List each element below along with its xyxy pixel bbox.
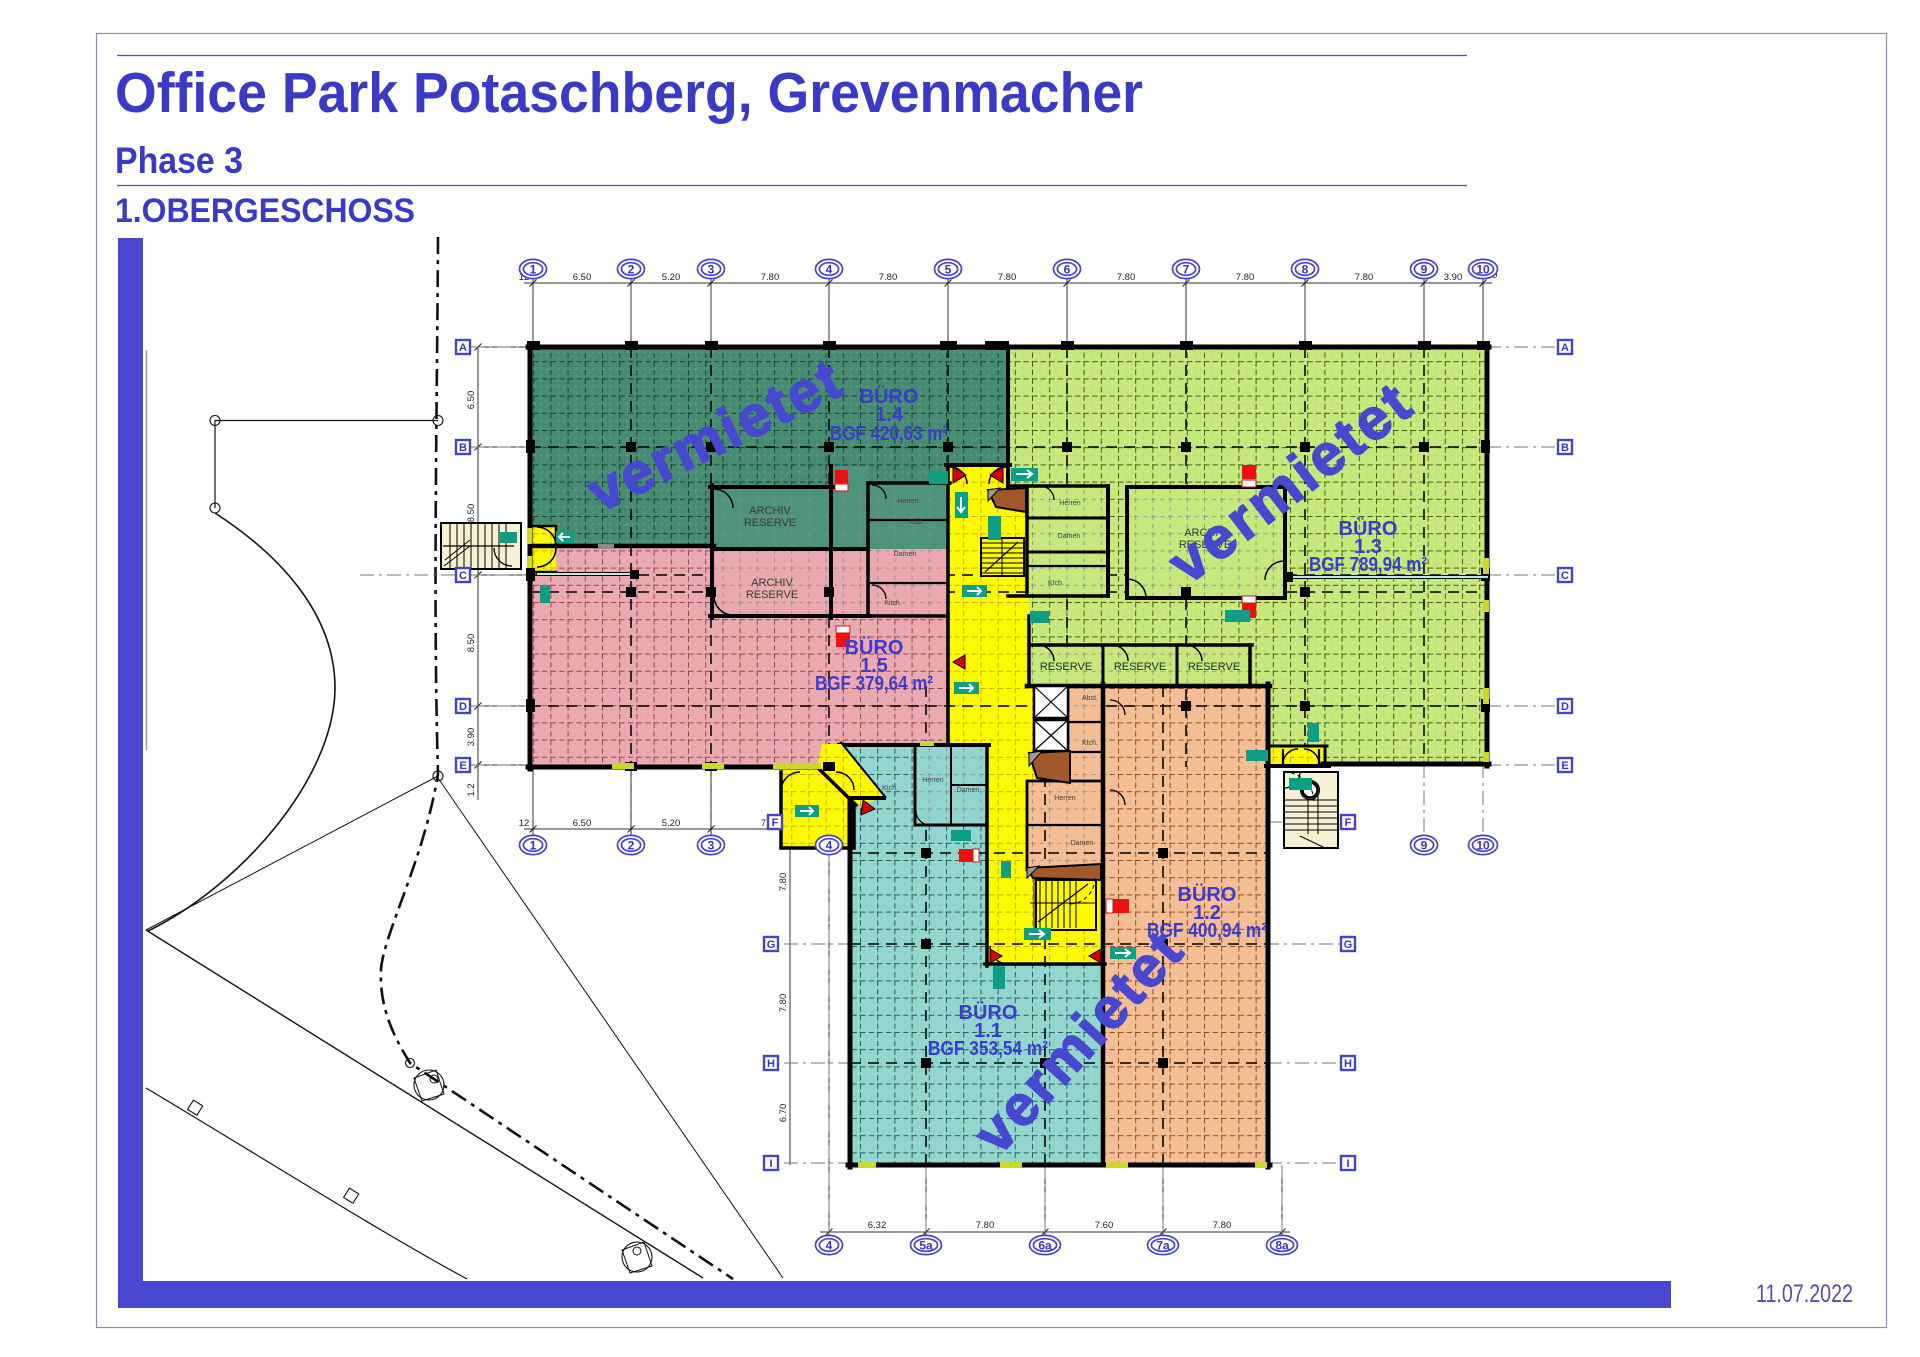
svg-text:G: G xyxy=(1344,939,1353,951)
svg-text:Office Park Potaschberg, Greve: Office Park Potaschberg, Grevenmacher xyxy=(115,61,1143,125)
svg-text:3: 3 xyxy=(708,263,715,277)
svg-text:6: 6 xyxy=(1064,263,1071,277)
svg-text:1.2: 1.2 xyxy=(466,783,477,796)
svg-text:Kitch.: Kitch. xyxy=(884,600,902,607)
svg-text:E: E xyxy=(459,760,466,772)
svg-text:3: 3 xyxy=(708,839,715,853)
svg-text:D: D xyxy=(1561,701,1569,713)
svg-text:ARCHIV: ARCHIV xyxy=(751,577,793,589)
svg-text:8.50: 8.50 xyxy=(466,504,477,523)
svg-text:7a: 7a xyxy=(1156,1239,1170,1253)
svg-text:3.90: 3.90 xyxy=(1444,272,1463,283)
svg-text:5.20: 5.20 xyxy=(662,818,681,829)
svg-text:Abst.: Abst. xyxy=(1082,695,1098,702)
svg-text:5a: 5a xyxy=(919,1239,933,1253)
svg-text:7: 7 xyxy=(1183,263,1190,277)
svg-text:9: 9 xyxy=(1421,263,1428,277)
svg-text:RESERVE: RESERVE xyxy=(1188,661,1240,673)
svg-text:Ktch.: Ktch. xyxy=(1048,580,1064,587)
svg-text:H: H xyxy=(1344,1058,1352,1070)
svg-text:Herren: Herren xyxy=(1054,795,1076,802)
svg-text:8a: 8a xyxy=(1275,1239,1289,1253)
svg-text:Ktot.: Ktot. xyxy=(910,519,924,526)
svg-text:G: G xyxy=(767,939,776,951)
svg-text:Ktch.: Ktch. xyxy=(882,785,898,792)
svg-text:6.50: 6.50 xyxy=(573,272,592,283)
svg-text:RESERVE: RESERVE xyxy=(744,517,796,529)
svg-text:Damen: Damen xyxy=(957,787,980,794)
svg-text:7.80: 7.80 xyxy=(778,873,789,892)
svg-text:10: 10 xyxy=(1476,839,1490,853)
svg-text:2: 2 xyxy=(628,839,635,853)
svg-text:6.32: 6.32 xyxy=(868,1220,887,1231)
svg-text:7.80: 7.80 xyxy=(1213,1220,1232,1231)
svg-text:Phase 3: Phase 3 xyxy=(115,140,243,181)
svg-text:7.80: 7.80 xyxy=(778,994,789,1013)
svg-text:ARCHIV: ARCHIV xyxy=(749,505,791,517)
svg-text:D: D xyxy=(459,701,467,713)
svg-text:4: 4 xyxy=(826,1239,833,1253)
svg-text:B: B xyxy=(459,442,467,454)
svg-text:Herren: Herren xyxy=(922,777,944,784)
svg-text:Herren: Herren xyxy=(897,498,919,505)
svg-text:4: 4 xyxy=(826,263,833,277)
svg-text:7.80: 7.80 xyxy=(879,272,898,283)
svg-text:6.50: 6.50 xyxy=(573,818,592,829)
svg-text:11.07.2022: 11.07.2022 xyxy=(1756,1280,1853,1308)
svg-text:Damen: Damen xyxy=(894,551,917,558)
svg-text:H: H xyxy=(767,1058,775,1070)
svg-text:BGF 420,63 m²: BGF 420,63 m² xyxy=(830,423,948,445)
svg-text:Damen: Damen xyxy=(1071,840,1094,847)
svg-text:7.80: 7.80 xyxy=(1236,272,1255,283)
svg-text:7.80: 7.80 xyxy=(998,272,1017,283)
svg-text:RESERVE: RESERVE xyxy=(746,589,798,601)
svg-text:I: I xyxy=(769,1158,772,1170)
svg-text:A: A xyxy=(459,342,467,354)
svg-text:1.OBERGESCHOSS: 1.OBERGESCHOSS xyxy=(115,192,415,230)
svg-text:BGF 379,64 m²: BGF 379,64 m² xyxy=(815,673,933,695)
svg-text:4: 4 xyxy=(826,839,833,853)
svg-text:7.80: 7.80 xyxy=(976,1220,995,1231)
svg-text:6.70: 6.70 xyxy=(778,1104,789,1123)
svg-text:5.20: 5.20 xyxy=(662,272,681,283)
svg-text:8.50: 8.50 xyxy=(466,634,477,653)
svg-text:7.60: 7.60 xyxy=(1095,1220,1114,1231)
svg-text:12: 12 xyxy=(519,818,530,829)
svg-text:1: 1 xyxy=(530,263,537,277)
svg-text:7.80: 7.80 xyxy=(1117,272,1136,283)
svg-text:E: E xyxy=(1561,760,1568,772)
svg-text:RESERVE: RESERVE xyxy=(1040,661,1092,673)
svg-text:3.90: 3.90 xyxy=(466,728,477,747)
svg-text:F: F xyxy=(772,817,779,829)
svg-text:9: 9 xyxy=(1421,839,1428,853)
svg-text:7.80: 7.80 xyxy=(1355,272,1374,283)
svg-text:5: 5 xyxy=(945,263,952,277)
svg-text:1: 1 xyxy=(530,839,537,853)
svg-text:Herren: Herren xyxy=(1059,500,1081,507)
svg-text:Ktch.: Ktch. xyxy=(1082,740,1098,747)
svg-text:2: 2 xyxy=(628,263,635,277)
svg-text:7.80: 7.80 xyxy=(761,272,780,283)
svg-text:RESERVE: RESERVE xyxy=(1114,661,1166,673)
svg-text:8: 8 xyxy=(1302,263,1309,277)
svg-text:I: I xyxy=(1346,1158,1349,1170)
svg-text:BGF 789,94 m²: BGF 789,94 m² xyxy=(1309,554,1427,576)
svg-text:Damen: Damen xyxy=(1058,533,1081,540)
svg-text:10: 10 xyxy=(1476,263,1490,277)
svg-text:6a: 6a xyxy=(1038,1239,1052,1253)
svg-text:F: F xyxy=(1345,817,1352,829)
svg-text:C: C xyxy=(1561,570,1569,582)
svg-text:A: A xyxy=(1561,342,1569,354)
svg-text:C: C xyxy=(459,570,467,582)
svg-text:B: B xyxy=(1561,442,1569,454)
svg-text:6.50: 6.50 xyxy=(466,391,477,410)
